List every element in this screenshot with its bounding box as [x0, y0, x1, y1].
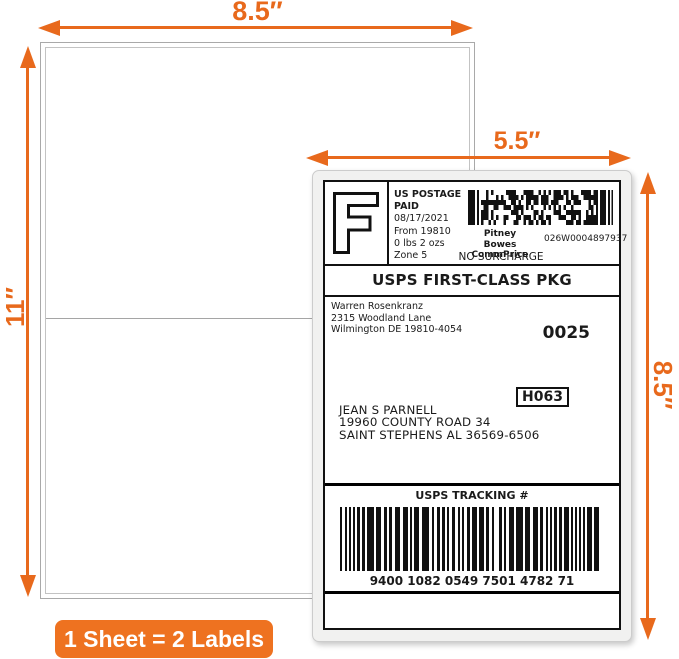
arrow-right-icon — [451, 20, 473, 36]
sheet-count-badge: 1 Sheet = 2 Labels — [55, 620, 273, 658]
arrow-line — [322, 156, 615, 159]
no-surcharge-text: NO SURCHARGE — [456, 251, 546, 263]
sheet-width-arrow — [38, 20, 473, 36]
sender-name: Warren Rosenkranz — [331, 301, 462, 313]
arrow-line — [54, 26, 457, 29]
postage-line: US POSTAGE — [394, 189, 464, 201]
address-section: Warren Rosenkranz 2315 Woodland Lane Wil… — [325, 297, 619, 483]
tracking-barcode — [340, 507, 604, 571]
meter-number: 026W0004897937 — [544, 234, 627, 244]
sender-address: Warren Rosenkranz 2315 Woodland Lane Wil… — [331, 301, 462, 336]
arrow-down-icon — [640, 618, 656, 640]
sender-street: 2315 Woodland Lane — [331, 313, 462, 325]
postage-section: US POSTAGE PAID 08/17/2021 From 19810 0 … — [325, 182, 619, 266]
meter-section: Pitney Bowes CommPrice 026W0004897937 NO… — [464, 182, 619, 264]
arrow-line — [26, 62, 29, 581]
carrier-name: Pitney Bowes — [466, 229, 534, 250]
meter-barcode — [468, 190, 613, 225]
rate-letter-cell — [325, 182, 389, 264]
batch-number: 0025 — [543, 323, 590, 343]
postage-line: PAID — [394, 201, 464, 213]
label-height-arrow — [640, 172, 656, 640]
postage-origin: From 19810 — [394, 226, 464, 238]
tracking-number: 9400 1082 0549 7501 4782 71 — [325, 574, 619, 589]
shipping-label-card: US POSTAGE PAID 08/17/2021 From 19810 0 … — [312, 170, 632, 642]
postage-date: 08/17/2021 — [394, 213, 464, 225]
rate-letter-f-icon — [333, 192, 379, 254]
postage-zone: Zone 5 — [394, 250, 464, 262]
sender-city: Wilmington DE 19810-4054 — [331, 324, 462, 336]
label-width-arrow — [306, 150, 631, 166]
recipient-street: 19960 COUNTY ROAD 34 — [339, 416, 540, 428]
sheet-height-arrow — [20, 46, 36, 597]
divider-bar — [325, 591, 619, 594]
service-banner: USPS FIRST-CLASS PKG — [325, 266, 619, 297]
arrow-line — [646, 188, 649, 624]
recipient-address: JEAN S PARNELL 19960 COUNTY ROAD 34 SAIN… — [339, 404, 540, 441]
label-sheet-diagram: 8.5″ 11″ 5.5″ 8.5″ — [0, 0, 679, 659]
tracking-header: USPS TRACKING # — [325, 486, 619, 505]
postage-weight: 0 lbs 2 ozs — [394, 238, 464, 250]
recipient-city: SAINT STEPHENS AL 36569-6506 — [339, 429, 540, 441]
postage-info: US POSTAGE PAID 08/17/2021 From 19810 0 … — [389, 182, 464, 264]
arrow-right-icon — [609, 150, 631, 166]
shipping-label-border: US POSTAGE PAID 08/17/2021 From 19810 0 … — [323, 180, 621, 630]
arrow-down-icon — [20, 575, 36, 597]
